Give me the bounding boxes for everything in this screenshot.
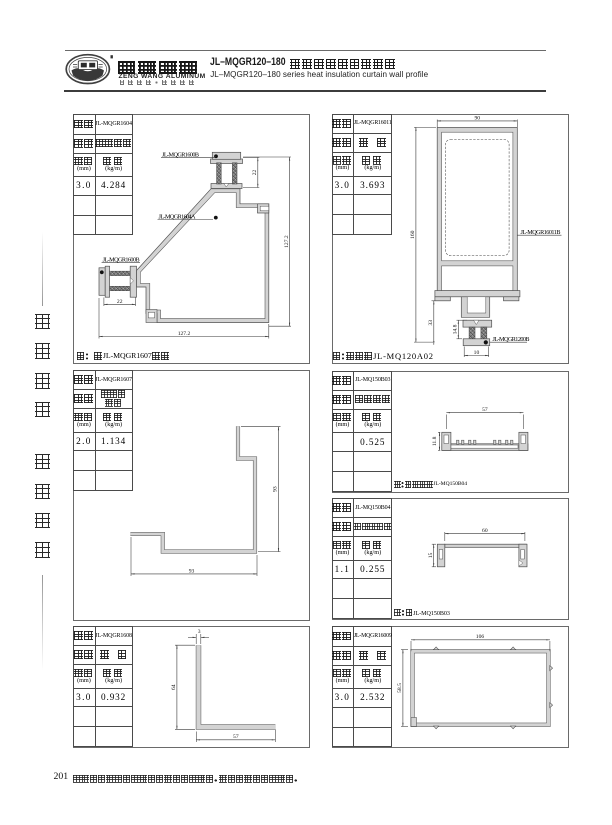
svg-text:3: 3 xyxy=(198,629,201,635)
svg-text:10: 10 xyxy=(474,350,480,356)
svg-text:22: 22 xyxy=(117,299,123,305)
svg-text:58.5: 58.5 xyxy=(397,683,403,693)
svg-text:127.2: 127.2 xyxy=(284,235,290,248)
svg-text:15: 15 xyxy=(428,553,434,559)
svg-text:33: 33 xyxy=(428,320,434,326)
svg-text:127.2: 127.2 xyxy=(178,331,191,337)
svg-text:11.8: 11.8 xyxy=(432,436,438,446)
svg-text:60: 60 xyxy=(482,528,488,534)
svg-text:22: 22 xyxy=(252,170,258,176)
svg-text:93: 93 xyxy=(273,486,279,492)
svg-text:64: 64 xyxy=(171,684,177,690)
svg-text:57: 57 xyxy=(233,734,239,740)
svg-text:57: 57 xyxy=(482,407,488,413)
svg-text:160: 160 xyxy=(410,230,416,239)
svg-text:93: 93 xyxy=(189,568,195,574)
svg-text:14.8: 14.8 xyxy=(453,324,459,334)
svg-text:106: 106 xyxy=(476,634,485,640)
svg-text:90: 90 xyxy=(474,115,480,121)
